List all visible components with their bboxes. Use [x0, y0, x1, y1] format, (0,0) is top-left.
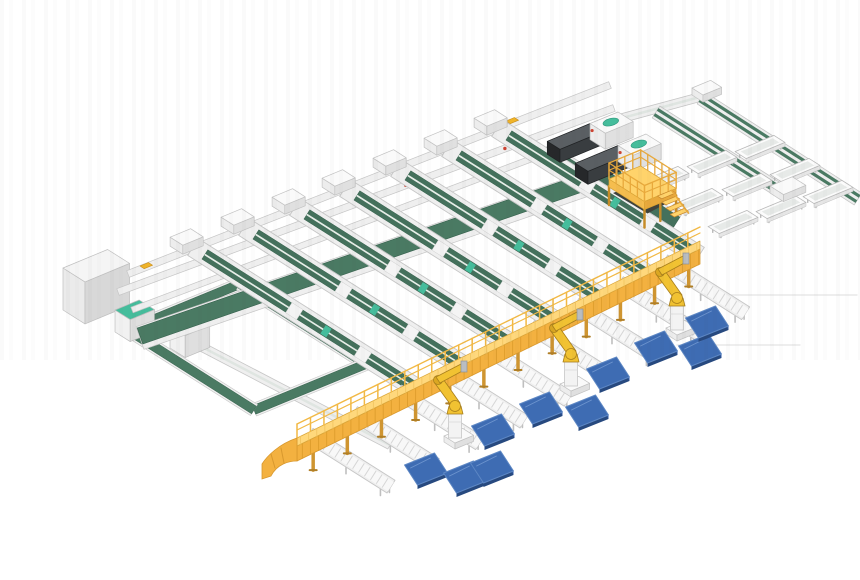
robot-column: [449, 414, 462, 438]
conveyor-sortation-scene: [0, 0, 860, 580]
indicator-light: [591, 129, 594, 132]
robot-shoulder: [450, 401, 461, 412]
gantry-stair-ramp: [262, 438, 297, 479]
indicator-light: [619, 151, 622, 154]
robot-gripper: [683, 253, 689, 264]
indicator-light: [503, 147, 506, 150]
robot-gripper: [461, 361, 467, 372]
factory-3d-render: [0, 0, 860, 580]
robot-shoulder: [566, 349, 577, 360]
trough-conveyor: [708, 210, 758, 237]
robot-gripper: [577, 309, 583, 320]
pallet-top: [566, 395, 609, 427]
robot-column: [671, 306, 684, 330]
robot-shoulder: [672, 293, 683, 304]
robot-column: [565, 362, 578, 386]
pallet: [566, 395, 609, 431]
